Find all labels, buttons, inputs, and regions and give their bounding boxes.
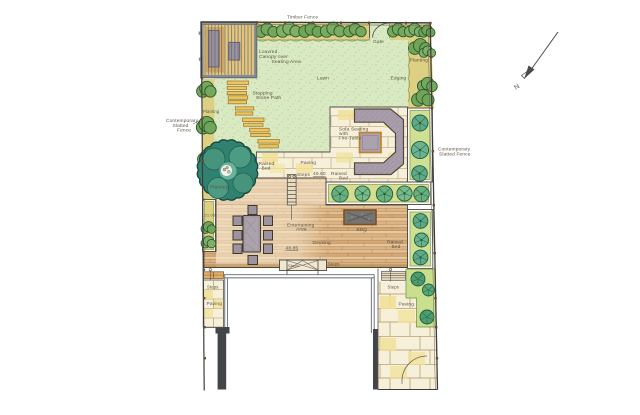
svg-text:Bed: Bed (339, 176, 348, 182)
svg-text:49.60: 49.60 (313, 171, 326, 177)
svg-text:Steps: Steps (288, 263, 299, 268)
svg-text:48.85: 48.85 (286, 246, 299, 252)
svg-text:Stone Path: Stone Path (256, 95, 281, 101)
svg-text:Area: Area (296, 227, 307, 233)
svg-text:Fence: Fence (177, 128, 191, 134)
svg-text:Steps: Steps (388, 285, 399, 290)
svg-text:Steps: Steps (207, 285, 218, 290)
svg-text:BBQ: BBQ (357, 227, 368, 233)
svg-text:Steps: Steps (297, 172, 310, 178)
svg-text:Timber Fence: Timber Fence (287, 15, 318, 21)
svg-text:Planting: Planting (203, 109, 220, 114)
svg-text:Paving: Paving (301, 160, 317, 166)
svg-text:Steps: Steps (328, 262, 339, 267)
svg-text:Paving: Paving (399, 302, 415, 308)
svg-text:Lawn: Lawn (317, 76, 329, 82)
svg-text:Planting: Planting (410, 58, 429, 64)
svg-text:Seating Area: Seating Area (272, 59, 301, 65)
svg-text:Slatted Fence: Slatted Fence (439, 151, 471, 157)
svg-text:Edging: Edging (391, 76, 407, 82)
svg-text:Bed: Bed (392, 244, 401, 250)
svg-text:Planting: Planting (210, 185, 229, 191)
svg-text:Fire-Table: Fire-Table (339, 136, 362, 142)
svg-text:Bed: Bed (262, 166, 271, 172)
svg-text:Gate: Gate (373, 39, 384, 45)
svg-text:21.05: 21.05 (205, 213, 216, 218)
svg-text:Paving: Paving (207, 301, 223, 307)
svg-text:Decking: Decking (313, 240, 332, 246)
